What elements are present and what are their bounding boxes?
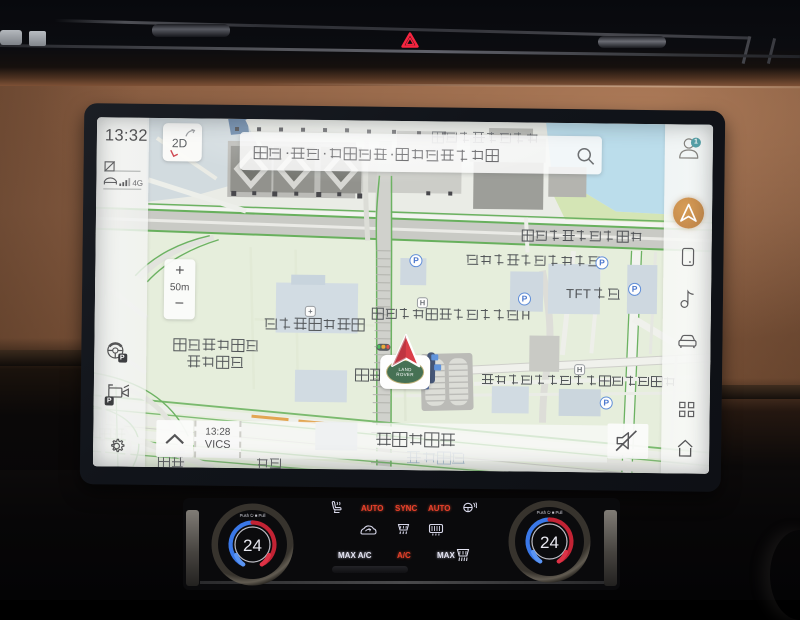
svg-text:Push ⏻ ■ Pull: Push ⏻ ■ Pull [240,513,266,518]
svg-text:24: 24 [243,536,262,555]
svg-text:24: 24 [540,533,559,552]
svg-text:Push ⏻ ■ Pull: Push ⏻ ■ Pull [537,510,563,515]
